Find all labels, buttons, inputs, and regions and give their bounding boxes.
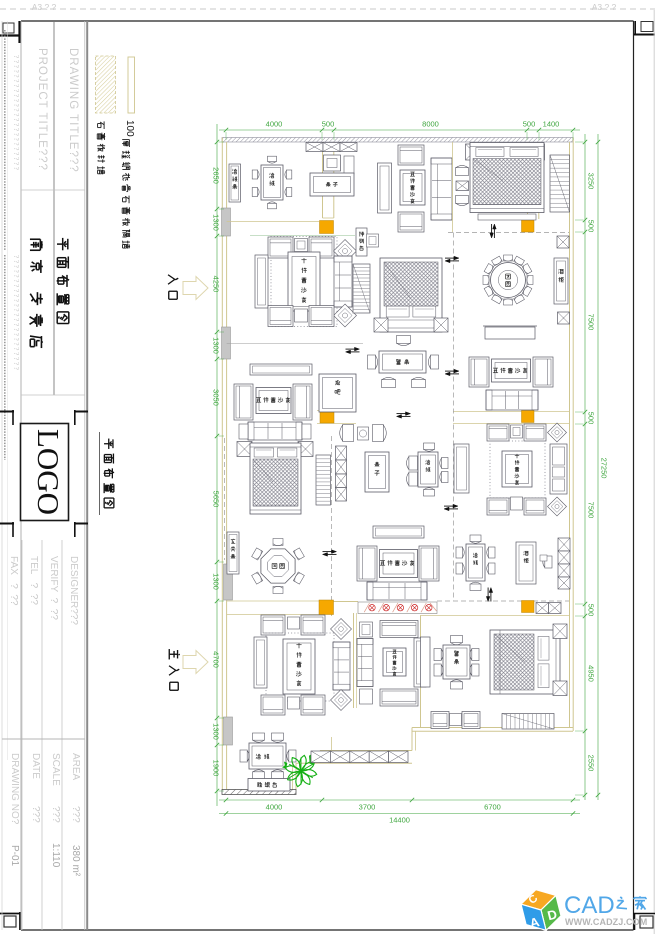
svg-text:4250: 4250 <box>212 276 221 293</box>
svg-text:1:110: 1:110 <box>50 843 61 868</box>
svg-text:VERIFY ? ??: VERIFY ? ?? <box>48 556 59 620</box>
svg-text:2650: 2650 <box>212 167 221 184</box>
svg-text:5650: 5650 <box>212 491 221 508</box>
svg-text:1400: 1400 <box>543 120 560 129</box>
svg-text:DRAWING TITLE???: DRAWING TITLE??? <box>67 48 79 173</box>
svg-text:LOGO: LOGO <box>31 429 66 515</box>
svg-text:DRAWING NO?: DRAWING NO? <box>9 753 20 825</box>
svg-text:1900: 1900 <box>212 760 221 777</box>
svg-text:7500: 7500 <box>587 314 596 331</box>
svg-text:500: 500 <box>587 604 596 617</box>
svg-text:P-01: P-01 <box>9 845 20 867</box>
svg-text:WWW.CADZJ.COM: WWW.CADZJ.COM <box>565 917 647 927</box>
svg-text:27250: 27250 <box>600 458 609 479</box>
svg-text:8000: 8000 <box>422 120 439 129</box>
svg-text:380 m²: 380 m² <box>70 845 81 877</box>
svg-text:DATE: DATE <box>30 753 41 779</box>
svg-text:500: 500 <box>322 120 335 129</box>
svg-text:3250: 3250 <box>587 173 596 190</box>
svg-text:A3 ? ?: A3 ? ? <box>592 2 617 12</box>
svg-text:1300: 1300 <box>212 214 221 231</box>
svg-text:PROJECT TITLE???: PROJECT TITLE??? <box>36 48 48 171</box>
svg-text:CAD: CAD <box>564 892 615 919</box>
svg-text:A3 ? ?: A3 ? ? <box>32 2 57 12</box>
svg-text:3700: 3700 <box>359 803 376 812</box>
svg-text:3050: 3050 <box>212 389 221 406</box>
svg-text:14400: 14400 <box>389 816 410 825</box>
svg-text:500: 500 <box>587 220 596 233</box>
svg-text:AREA: AREA <box>70 753 81 781</box>
svg-text:2550: 2550 <box>587 755 596 772</box>
svg-text:???: ??? <box>30 806 41 823</box>
svg-text:???: ??? <box>50 806 61 823</box>
svg-text:6700: 6700 <box>484 803 501 812</box>
svg-text:4000: 4000 <box>266 120 283 129</box>
svg-text:? ? ? ? ? ? ? ? ? ? ? ? ? ? ?: ? ? ? ? ? ? ? ? ? ? ? ? ? ? ? ? ? ? ? ? … <box>12 55 20 170</box>
svg-text:1300: 1300 <box>212 723 221 740</box>
svg-text:500: 500 <box>587 412 596 425</box>
svg-text:DESIGNER???: DESIGNER??? <box>68 556 79 625</box>
svg-text:TEL ? ??: TEL ? ?? <box>28 556 39 605</box>
svg-text:7500: 7500 <box>587 502 596 519</box>
svg-text:FAX ? ??: FAX ? ?? <box>8 556 19 606</box>
svg-text:4950: 4950 <box>587 665 596 682</box>
svg-text:1300: 1300 <box>212 337 221 354</box>
svg-text:SCALE: SCALE <box>50 753 61 786</box>
svg-text:1300: 1300 <box>212 573 221 590</box>
svg-text:500: 500 <box>523 120 536 129</box>
svg-text:???: ??? <box>70 806 81 823</box>
svg-text:? ? ? ? ? ? ? ? ? ? ? ? ? ? ?: ? ? ? ? ? ? ? ? ? ? ? ? ? ? ? ? ? ? ? ? … <box>12 255 20 370</box>
svg-text:4000: 4000 <box>266 803 283 812</box>
svg-text:100: 100 <box>124 120 135 137</box>
svg-text:4700: 4700 <box>212 651 221 668</box>
